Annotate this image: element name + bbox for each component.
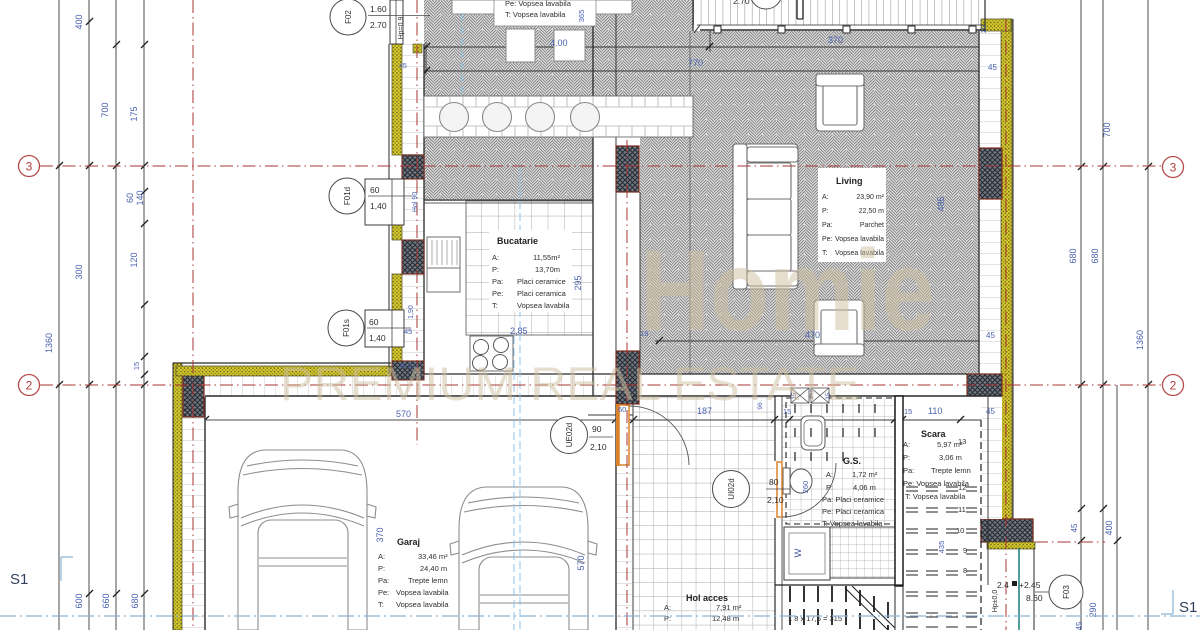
svg-text:PREMIUM REAL ESTATE: PREMIUM REAL ESTATE (280, 357, 860, 410)
svg-text:Pe:: Pe: (492, 289, 503, 298)
svg-text:P:: P: (378, 564, 385, 573)
svg-text:Hp±0,0: Hp±0,0 (992, 590, 999, 613)
svg-text:435: 435 (937, 541, 946, 554)
svg-text:F02: F02 (344, 10, 353, 24)
svg-text:A:: A: (664, 603, 671, 612)
svg-text:T: Vopsea lavabila: T: Vopsea lavabila (505, 10, 566, 19)
svg-text:300: 300 (74, 264, 84, 279)
svg-text:11: 11 (958, 505, 966, 514)
svg-text:Scara: Scara (921, 429, 947, 439)
svg-text:A:: A: (903, 440, 910, 449)
svg-text:Homie: Homie (640, 227, 935, 355)
svg-text:Pe: Vopsea lavabila: Pe: Vopsea lavabila (505, 0, 572, 8)
svg-text:P:: P: (826, 483, 833, 492)
svg-text:UI02d: UI02d (727, 478, 736, 499)
svg-text:9: 9 (963, 546, 967, 555)
svg-text:A:: A: (822, 194, 829, 201)
svg-text:P:: P: (492, 265, 499, 274)
svg-text:2: 2 (26, 379, 33, 393)
svg-text:Trepte lemn: Trepte lemn (931, 466, 971, 475)
svg-text:10: 10 (956, 526, 964, 535)
svg-text:60: 60 (369, 317, 379, 327)
svg-text:12,48 m: 12,48 m (712, 614, 739, 623)
svg-text:11,55m²: 11,55m² (533, 253, 560, 262)
svg-text:Living: Living (836, 176, 863, 186)
svg-text:P:: P: (903, 453, 910, 462)
svg-text:1,72 m²: 1,72 m² (852, 470, 878, 479)
svg-text:140: 140 (135, 190, 145, 205)
svg-text:2.4: 2.4 (997, 580, 1009, 590)
svg-text:370: 370 (828, 35, 843, 45)
svg-text:2,10: 2,10 (590, 442, 607, 452)
svg-text:W: W (793, 548, 804, 557)
svg-text:S1: S1 (1179, 599, 1197, 616)
svg-text:Pa:: Pa: (903, 466, 914, 475)
svg-text:3: 3 (26, 160, 33, 174)
svg-text:290: 290 (1088, 602, 1098, 617)
svg-text:A:: A: (826, 470, 833, 479)
svg-text:8.60: 8.60 (1026, 593, 1043, 603)
svg-text:770: 770 (688, 58, 703, 68)
svg-text:400: 400 (1104, 520, 1114, 535)
svg-text:1,40: 1,40 (369, 333, 386, 343)
svg-text:4.00: 4.00 (550, 38, 568, 48)
svg-text:A:: A: (492, 253, 499, 262)
svg-text:45: 45 (404, 327, 412, 336)
svg-text:110: 110 (928, 406, 942, 416)
svg-text:Pe:: Pe: (378, 588, 389, 597)
svg-text:T: Vopsea lavabila: T: Vopsea lavabila (822, 519, 883, 528)
svg-text:T:: T: (378, 600, 384, 609)
svg-text:45: 45 (1070, 523, 1079, 532)
svg-text:8: 8 (963, 566, 967, 575)
svg-text:13: 13 (958, 437, 966, 446)
svg-text:680: 680 (1090, 248, 1100, 263)
svg-text:3,06 m: 3,06 m (939, 453, 962, 462)
svg-text:T: Vopsea lavabila: T: Vopsea lavabila (905, 492, 966, 501)
svg-text:Hol acces: Hol acces (686, 593, 728, 603)
svg-text:600: 600 (74, 593, 84, 608)
svg-text:2: 2 (1170, 379, 1177, 393)
svg-text:700: 700 (100, 102, 110, 117)
svg-text:60: 60 (370, 185, 380, 195)
svg-text:4,06 m: 4,06 m (853, 483, 876, 492)
svg-text:90: 90 (592, 424, 602, 434)
svg-text:22,50 m: 22,50 m (859, 208, 884, 215)
svg-text:570: 570 (576, 555, 586, 570)
svg-text:33,46 m²: 33,46 m² (418, 552, 448, 561)
svg-text:1.60: 1.60 (370, 4, 387, 14)
svg-text:Vopsea lavabila: Vopsea lavabila (517, 301, 570, 310)
svg-text:400: 400 (74, 14, 84, 29)
svg-text:Hol 90: Hol 90 (412, 192, 419, 212)
svg-text:Bucatarie: Bucatarie (497, 236, 538, 246)
svg-text:80: 80 (769, 477, 779, 487)
svg-text:Placi ceramice: Placi ceramice (517, 277, 566, 286)
svg-text:A:: A: (378, 552, 385, 561)
svg-text:660: 660 (101, 593, 111, 608)
svg-text:P:: P: (822, 208, 829, 215)
svg-text:P:: P: (664, 614, 671, 623)
svg-text:Garaj: Garaj (397, 537, 420, 547)
svg-text:F01s: F01s (342, 319, 351, 337)
svg-text:260: 260 (801, 481, 810, 494)
svg-text:45: 45 (988, 63, 997, 72)
svg-text:Pa: Placi ceramice: Pa: Placi ceramice (822, 495, 884, 504)
svg-text:Vopsea lavabila: Vopsea lavabila (396, 588, 449, 597)
svg-text:Placi ceramica: Placi ceramica (517, 289, 567, 298)
svg-text:570: 570 (396, 409, 411, 419)
svg-text:60: 60 (125, 193, 135, 203)
svg-text:Hp=0,9: Hp=0,9 (398, 17, 405, 40)
svg-text:24,40 m: 24,40 m (420, 564, 447, 573)
svg-text:T:: T: (492, 301, 498, 310)
svg-text:680: 680 (130, 593, 140, 608)
svg-text:175: 175 (129, 106, 139, 121)
svg-text:1360: 1360 (44, 333, 54, 353)
svg-text:F01d: F01d (343, 187, 352, 205)
svg-text:23,90 m²: 23,90 m² (856, 194, 884, 201)
svg-text:365: 365 (577, 10, 586, 23)
svg-text:2,85: 2,85 (510, 326, 528, 336)
svg-text:1,90: 1,90 (408, 305, 415, 319)
svg-text:Trepte lemn: Trepte lemn (408, 576, 448, 585)
svg-text:+2.45: +2.45 (1019, 580, 1041, 590)
svg-text:295: 295 (573, 275, 583, 290)
svg-text:UE02d: UE02d (565, 423, 574, 447)
svg-text:1360: 1360 (1135, 330, 1145, 350)
svg-text:G.S.: G.S. (843, 456, 861, 466)
svg-text:120: 120 (129, 252, 139, 267)
svg-text:Pe: Placi ceramica: Pe: Placi ceramica (822, 507, 885, 516)
svg-text:S1: S1 (10, 571, 28, 588)
svg-text:20: 20 (979, 25, 988, 33)
svg-text:15: 15 (904, 407, 912, 416)
svg-text:2.70: 2.70 (370, 20, 387, 30)
svg-text:7,91 m²: 7,91 m² (716, 603, 742, 612)
svg-text:1 8 x 17,5 = 315: 1 8 x 17,5 = 315 (788, 614, 842, 623)
svg-text:45: 45 (399, 63, 407, 70)
svg-text:1,40: 1,40 (370, 201, 387, 211)
svg-text:15: 15 (132, 362, 141, 370)
svg-text:680: 680 (1068, 248, 1078, 263)
svg-text:45: 45 (986, 331, 995, 340)
svg-text:Vopsea lavabila: Vopsea lavabila (396, 600, 449, 609)
svg-text:2,10: 2,10 (767, 495, 784, 505)
svg-text:13,70m: 13,70m (535, 265, 560, 274)
svg-text:12: 12 (958, 483, 966, 492)
svg-text:45: 45 (986, 407, 995, 416)
svg-text:3: 3 (1170, 161, 1177, 175)
svg-text:370: 370 (375, 527, 385, 542)
svg-text:Pa:: Pa: (492, 277, 503, 286)
svg-text:Pa:: Pa: (378, 576, 389, 585)
svg-text:2.70: 2.70 (733, 0, 750, 6)
svg-text:45: 45 (1075, 621, 1084, 630)
svg-text:F03: F03 (1062, 585, 1071, 599)
svg-text:700: 700 (1102, 122, 1112, 137)
svg-text:485: 485 (936, 196, 946, 211)
